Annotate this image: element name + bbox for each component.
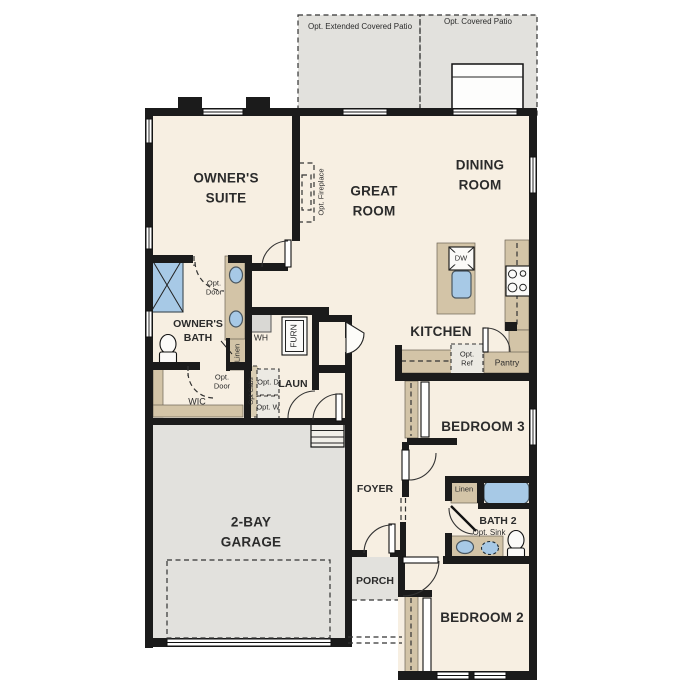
label-opt-door-bath: Opt. Door — [201, 279, 227, 298]
label-opt-dryer: Opt. D — [256, 377, 280, 386]
label-opt-cabs: Opt Cabs — [248, 377, 256, 404]
label-opt-fireplace: Opt. Fireplace — [316, 168, 325, 215]
room-label-laundry: LAUN — [278, 377, 307, 391]
pilaster-left — [178, 97, 202, 108]
room-label-garage: 2-BAY GARAGE — [212, 512, 290, 551]
room-label-wic: WIC — [188, 396, 206, 407]
patio-label-covered: Opt. Covered Patio — [413, 17, 543, 27]
walkway — [348, 637, 402, 643]
garage-door — [167, 639, 331, 646]
label-dishwasher: DW — [455, 253, 468, 262]
label-water-heater: WH — [254, 333, 268, 344]
water-heater — [250, 314, 271, 332]
kitchen-sink — [452, 271, 471, 298]
patio-structure — [452, 64, 523, 110]
label-opt-washer: Opt. W — [256, 402, 280, 411]
room-label-owners-suite: OWNER'S SUITE — [180, 168, 272, 207]
label-opt-door-wic: Opt. Door — [209, 373, 235, 392]
floor-plan: Opt. Extended Covered Patio Opt. Covered… — [0, 0, 687, 687]
room-label-great-room: GREAT ROOM — [343, 181, 405, 220]
label-opt-sink: Opt. Sink — [463, 528, 515, 538]
pilaster-right — [246, 97, 270, 108]
room-label-bath2: BATH 2 — [479, 514, 516, 528]
range — [506, 266, 530, 296]
room-label-bedroom2: BEDROOM 2 — [422, 608, 542, 628]
shower — [151, 258, 183, 312]
room-label-foyer: FOYER — [357, 482, 393, 496]
label-pantry: Pantry — [495, 358, 520, 369]
room-label-dining-room: DINING ROOM — [448, 155, 512, 194]
label-furnace: FURN — [289, 324, 300, 348]
room-label-owners-bath: OWNER'S BATH — [168, 317, 228, 345]
room-label-porch: PORCH — [356, 574, 394, 588]
garage-steps — [311, 424, 344, 447]
room-label-kitchen: KITCHEN — [386, 322, 496, 342]
label-linen-owners: Linen — [232, 344, 241, 362]
patio-label-extended: Opt. Extended Covered Patio — [304, 22, 416, 32]
label-opt-ref: Opt. Ref — [455, 350, 479, 369]
label-linen-bath2: Linen — [455, 484, 473, 493]
floor-plan-svg — [0, 0, 687, 687]
bathtub — [484, 481, 529, 504]
room-label-bedroom3: BEDROOM 3 — [423, 417, 543, 437]
